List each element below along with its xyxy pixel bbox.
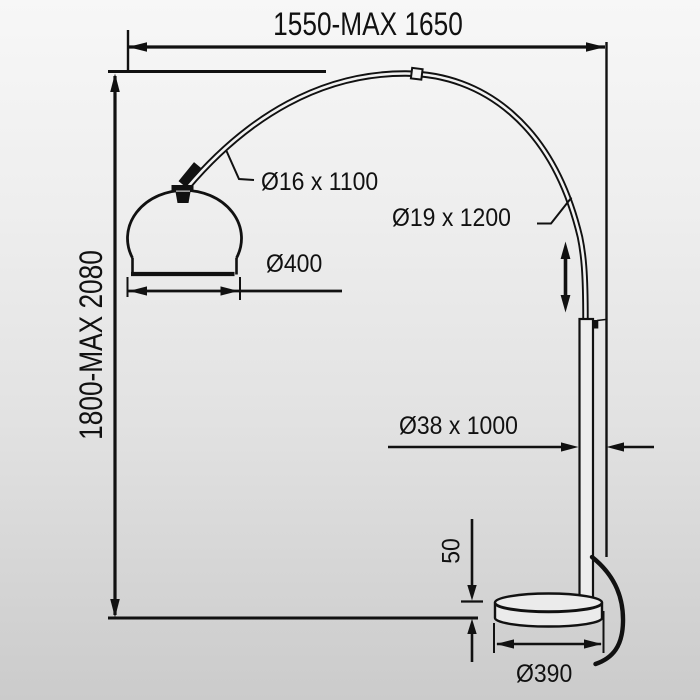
overall-height-dimension: [108, 72, 478, 619]
arrow-up-icon: [110, 74, 120, 93]
pole-joint: [593, 320, 599, 329]
diagram-canvas: 1550-MAX 1650 1800-MAX 2080 Ø16 x 1100 Ø…: [0, 0, 700, 700]
arc-tube-label: Ø16 x 1100: [261, 170, 378, 195]
shade-diameter-dimension: [128, 277, 343, 300]
shade-diameter-label: Ø400: [266, 252, 322, 277]
arc-tube-leader-line: [227, 151, 255, 180]
arrow-left-icon: [129, 286, 147, 295]
arc-joint: [411, 68, 423, 80]
pole-diameter-dimension: [388, 442, 654, 451]
base-height-label: 50: [440, 538, 465, 564]
arrow-right-icon: [584, 639, 602, 648]
arrow-right-icon: [586, 42, 605, 52]
arc-tube: [187, 68, 586, 319]
upper-pole-label: Ø19 x 1200: [392, 206, 511, 231]
height-adjust-arrow: [561, 242, 571, 313]
main-pole-label: Ø38 x 1000: [399, 414, 518, 439]
overall-width-dimension: [128, 30, 607, 557]
arrow-up-icon: [467, 619, 476, 634]
overall-height-label: 1800-MAX 2080: [75, 250, 107, 440]
arrow-up-icon: [561, 242, 571, 260]
arrow-down-icon: [467, 585, 476, 601]
arrow-right-icon: [561, 442, 579, 451]
lamp-base: [495, 594, 602, 627]
arrow-left-icon: [607, 442, 625, 451]
arrow-left-icon: [496, 639, 514, 648]
overall-width-label: 1550-MAX 1650: [273, 8, 463, 40]
arrow-down-icon: [561, 295, 571, 313]
arrow-right-icon: [221, 286, 239, 295]
arrow-left-icon: [128, 42, 147, 52]
arrow-down-icon: [110, 599, 120, 618]
base-diameter-label: Ø390: [516, 662, 572, 687]
